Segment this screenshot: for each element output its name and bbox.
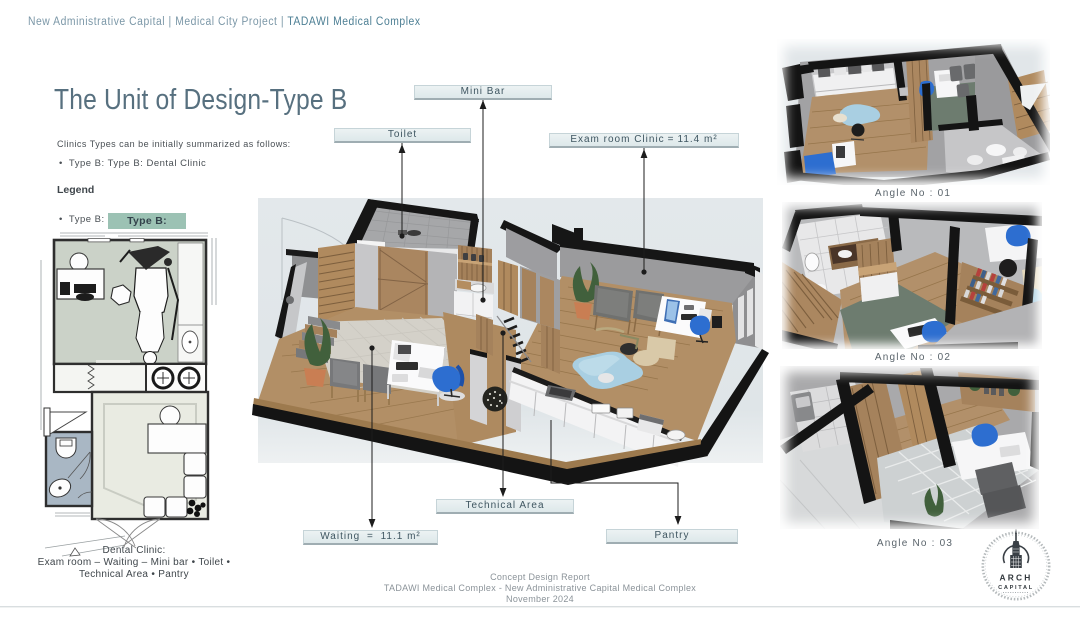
svg-text:ARCH: ARCH	[1000, 573, 1033, 583]
svg-text:CAPITAL: CAPITAL	[998, 585, 1034, 591]
